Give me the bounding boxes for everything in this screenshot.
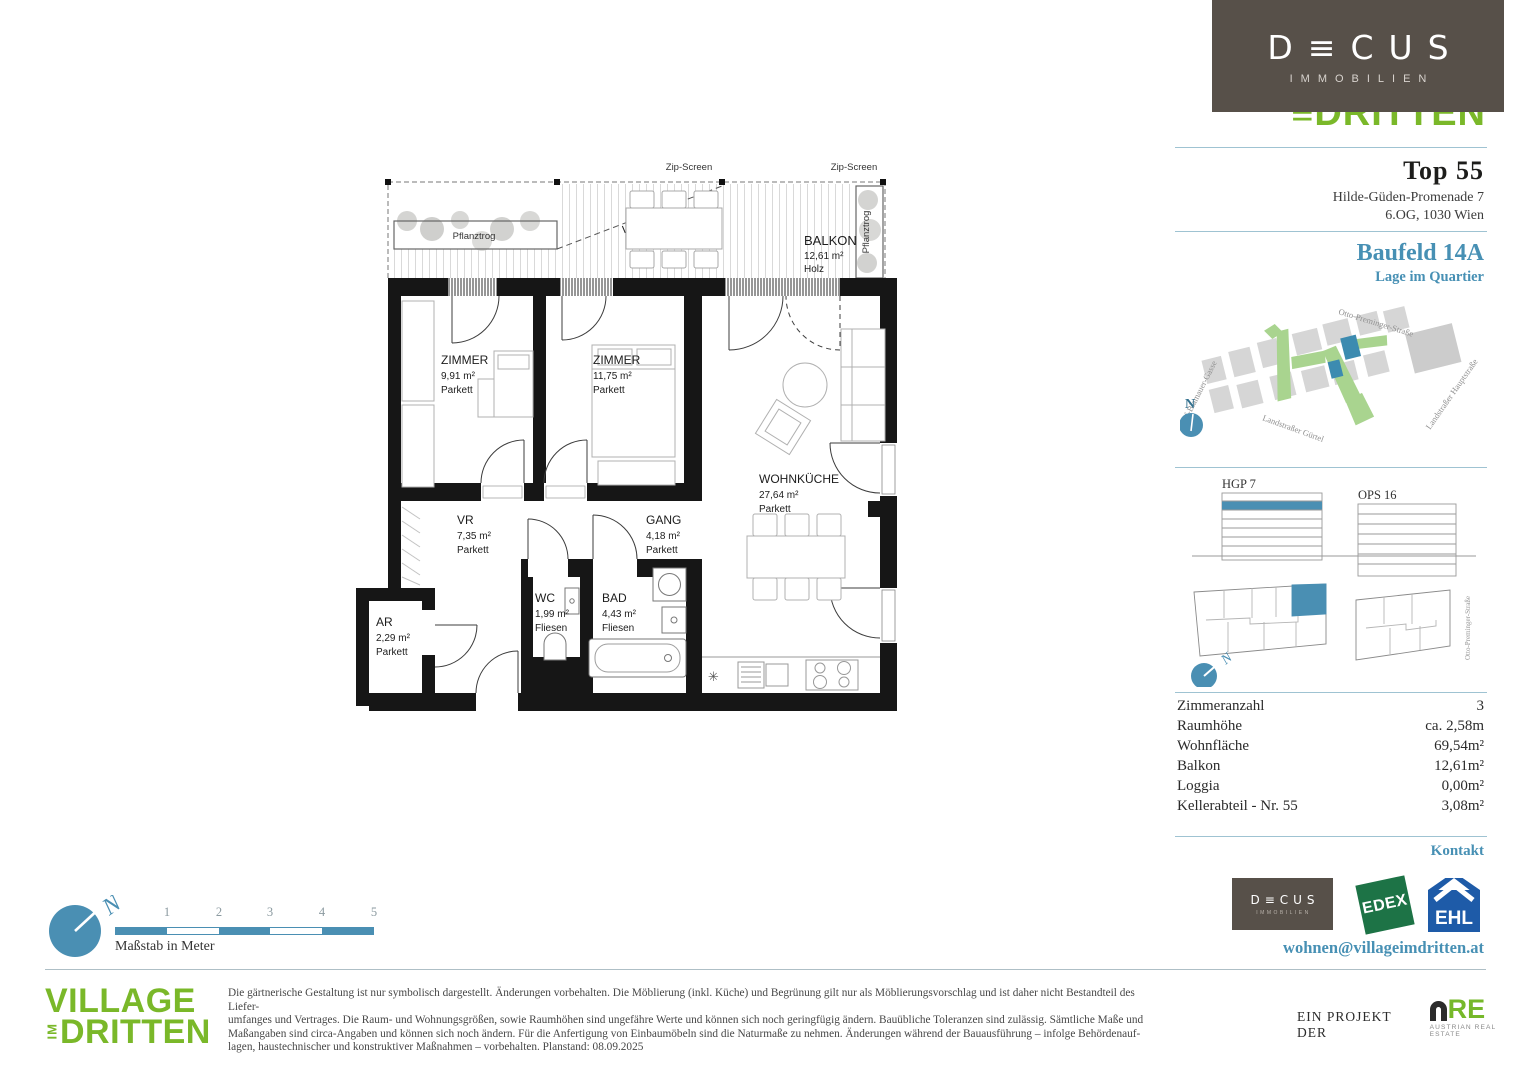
decus-logo-subtitle: IMMOBILIEN — [1290, 73, 1435, 85]
quartier-map: Otto-Preminger-Straße Adolf-Blamauer-Gas… — [1180, 292, 1486, 464]
zip-screen-label-1: Zip-Screen — [666, 162, 712, 173]
are-arch-icon — [1430, 1001, 1447, 1021]
svg-text:Fliesen: Fliesen — [602, 623, 634, 634]
diagram-north-arrow: N — [1191, 650, 1236, 687]
kontakt-heading: Kontakt — [1175, 843, 1484, 860]
separator-1 — [1175, 147, 1487, 148]
ehl-logo: EHL — [1428, 878, 1480, 932]
svg-text:VR: VR — [457, 513, 474, 527]
detail-label: Zimmeranzahl — [1177, 696, 1264, 716]
svg-text:Holz: Holz — [804, 264, 824, 275]
table-row: Raumhöheca. 2,58m — [1177, 716, 1484, 736]
detail-value: 3 — [1477, 696, 1485, 716]
page-title: Top 55 — [1175, 156, 1484, 186]
building-right-label: OPS 16 — [1358, 488, 1397, 502]
detail-label: Wohnfläche — [1177, 736, 1249, 756]
project-prefix: EIN PROJEKT DER — [1297, 1009, 1422, 1041]
scale-tick: 4 — [316, 905, 328, 920]
unit-header: Top 55 Hilde-Güden-Promenade 7 6.OG, 103… — [1175, 156, 1484, 225]
baufeld-header: Baufeld 14A Lage im Quartier — [1175, 240, 1484, 286]
round-table — [783, 363, 827, 407]
armchair — [755, 399, 810, 454]
svg-text:Parkett: Parkett — [457, 545, 489, 556]
project-credit: EIN PROJEKT DER RE AUSTRIAN REAL ESTATE — [1297, 997, 1527, 1041]
scale-tick: 1 — [161, 905, 173, 920]
svg-text:7,35 m²: 7,35 m² — [457, 531, 492, 542]
room-label-wc: WC 1,99 m² Fliesen — [535, 591, 570, 634]
scale-caption: Maßstab in Meter — [115, 939, 215, 955]
zip-screen-label-2: Zip-Screen — [831, 162, 877, 173]
disclaimer-line: Die gärtnerische Gestaltung ist nur symb… — [228, 987, 1156, 1014]
svg-text:EHL: EHL — [1435, 908, 1473, 929]
detail-label: Loggia — [1177, 776, 1220, 796]
decus-logo-wordmark: D≡CUS — [1267, 28, 1463, 67]
room-label-bad: BAD 4,43 m² Fliesen — [602, 591, 637, 634]
map-north-arrow: N — [1180, 397, 1203, 437]
svg-text:4,43 m²: 4,43 m² — [602, 609, 637, 620]
svg-text:BAD: BAD — [602, 591, 627, 605]
svg-text:Parkett: Parkett — [646, 545, 678, 556]
svg-text:WOHNKÜCHE: WOHNKÜCHE — [759, 472, 839, 486]
detail-value: 0,00m² — [1442, 776, 1484, 796]
table-row: Kellerabteil - Nr. 553,08m² — [1177, 796, 1484, 816]
are-logo: RE AUSTRIAN REAL ESTATE — [1430, 997, 1527, 1038]
kitchen-counter — [702, 657, 880, 690]
building-left-label: HGP 7 — [1222, 477, 1256, 491]
svg-text:ZIMMER: ZIMMER — [441, 353, 489, 367]
svg-text:Parkett: Parkett — [759, 504, 791, 515]
svg-text:1,99 m²: 1,99 m² — [535, 609, 570, 620]
detail-value: 3,08m² — [1442, 796, 1484, 816]
location-caption: Lage im Quartier — [1175, 269, 1484, 286]
street-label-landstrasser-guertel: Landstraßer Gürtel — [1261, 412, 1326, 444]
separator-2 — [1175, 231, 1487, 232]
vr-wardrobe-hatch — [402, 507, 420, 585]
svg-text:AR: AR — [376, 615, 393, 629]
planter-left-label: Pflanztrog — [453, 231, 496, 242]
floorplate-right — [1356, 590, 1450, 660]
detail-label: Balkon — [1177, 756, 1220, 776]
village-logo-partial: ≡DRITTEN — [1243, 112, 1486, 133]
address-line-1: Hilde-Güden-Promenade 7 — [1175, 189, 1484, 207]
dining-set — [747, 514, 845, 600]
svg-text:2,29 m²: 2,29 m² — [376, 633, 411, 644]
scale-bar: 1 2 3 4 5 Maßstab in Meter — [115, 905, 377, 955]
kitchen-light-symbol: ✳ — [708, 669, 719, 684]
table-row: Loggia0,00m² — [1177, 776, 1484, 796]
decus-contact-logo: D≡CUS IMMOBILIEN — [1232, 878, 1333, 930]
elevation-left — [1222, 493, 1322, 560]
decus-logo: D≡CUS IMMOBILIEN — [1212, 0, 1504, 112]
room-label-gang: GANG 4,18 m² Parkett — [646, 513, 681, 556]
elevation-right — [1358, 504, 1456, 576]
disclaimer-text: Die gärtnerische Gestaltung ist nur symb… — [228, 987, 1156, 1055]
svg-text:ZIMMER: ZIMMER — [593, 353, 641, 367]
detail-label: Raumhöhe — [1177, 716, 1242, 736]
disclaimer-line: Maßangaben sind circa-Angaben und können… — [228, 1028, 1156, 1042]
map-buildings — [1197, 292, 1470, 458]
table-row: Zimmeranzahl3 — [1177, 696, 1484, 716]
contact-email[interactable]: wohnen@villageimdritten.at — [1175, 938, 1484, 958]
svg-text:27,64 m²: 27,64 m² — [759, 490, 799, 501]
unit-details-table: Zimmeranzahl3 Raumhöheca. 2,58m Wohnfläc… — [1177, 696, 1484, 816]
svg-text:Fliesen: Fliesen — [535, 623, 567, 634]
svg-text:BALKON: BALKON — [804, 233, 857, 248]
svg-text:9,91 m²: 9,91 m² — [441, 371, 476, 382]
floor-plan: Pflanztrog Pflanztrog Luftraum Zip-Scree… — [352, 155, 904, 737]
svg-text:GANG: GANG — [646, 513, 681, 527]
address-line-2: 6.OG, 1030 Wien — [1175, 207, 1484, 225]
floorplate-street-label: Otto-Preminger-Straße — [1464, 596, 1472, 660]
detail-value: ca. 2,58m — [1425, 716, 1484, 736]
planter-right: Pflanztrog — [856, 186, 883, 278]
separator-5 — [1175, 836, 1487, 837]
planter-right-label: Pflanztrog — [861, 211, 872, 254]
svg-text:Parkett: Parkett — [593, 385, 625, 396]
room-label-vr: VR 7,35 m² Parkett — [457, 513, 492, 556]
svg-text:4,18 m²: 4,18 m² — [646, 531, 681, 542]
disclaimer-line: umfanges und Vertrages. Die Raum- und Wo… — [228, 1014, 1156, 1028]
planter-left: Pflanztrog — [394, 211, 557, 251]
edex-logo: EDEX — [1357, 877, 1413, 933]
svg-text:WC: WC — [535, 591, 555, 605]
detail-label: Kellerabteil - Nr. 55 — [1177, 796, 1298, 816]
detail-value: 69,54m² — [1434, 736, 1484, 756]
svg-text:Parkett: Parkett — [441, 385, 473, 396]
svg-text:N: N — [1185, 397, 1195, 412]
baufeld-title: Baufeld 14A — [1175, 240, 1484, 267]
scale-tick: 2 — [213, 905, 225, 920]
room-label-wohnkueche: WOHNKÜCHE 27,64 m² Parkett — [759, 472, 839, 515]
floorplate-left — [1194, 584, 1326, 656]
separator-3 — [1175, 467, 1487, 468]
sofa — [841, 329, 885, 441]
detail-value: 12,61m² — [1434, 756, 1484, 776]
building-diagrams: HGP 7 OPS 16 Otto-Preminger-Straße N — [1180, 472, 1486, 687]
table-row: Balkon12,61m² — [1177, 756, 1484, 776]
scale-bar-segments — [115, 927, 374, 935]
footer-divider — [45, 969, 1486, 970]
wardrobe-zimmer1 — [402, 301, 434, 487]
scale-tick: 5 — [368, 905, 380, 920]
disclaimer-line: lagen, haustechnischer und konstruktiver… — [228, 1041, 1156, 1055]
table-row: Wohnfläche69,54m² — [1177, 736, 1484, 756]
svg-text:Parkett: Parkett — [376, 647, 408, 658]
scale-tick: 3 — [264, 905, 276, 920]
separator-4 — [1175, 692, 1487, 693]
balcony-table — [626, 191, 722, 268]
village-im-dritten-logo: VILLAGE IMDRITTEN — [45, 986, 211, 1048]
svg-text:11,75 m²: 11,75 m² — [593, 371, 632, 382]
svg-text:12,61 m²: 12,61 m² — [804, 251, 844, 262]
